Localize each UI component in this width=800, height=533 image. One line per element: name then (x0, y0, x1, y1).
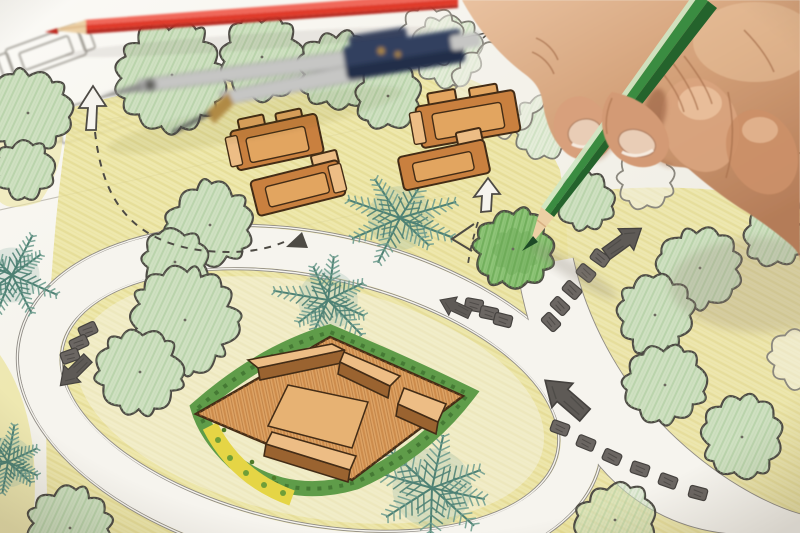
landscape-plan-photo (0, 0, 800, 533)
photo-canvas (0, 0, 800, 533)
